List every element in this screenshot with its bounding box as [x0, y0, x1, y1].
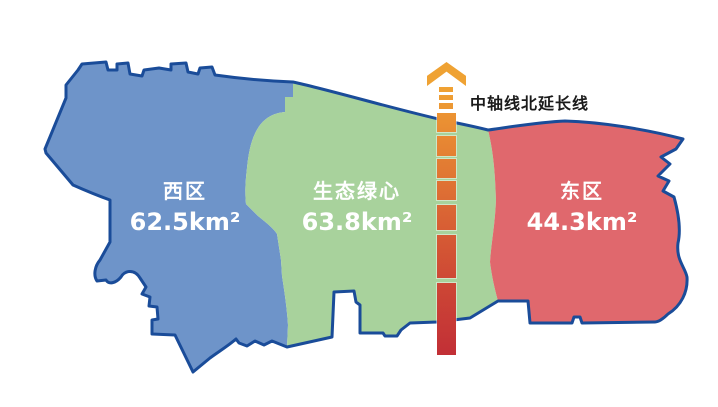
axis-dash	[439, 103, 453, 109]
planning-map: 西区 62.5km² 生态绿心 63.8km² 东区 44.3km² 中轴线北延…	[0, 0, 718, 407]
axis-dash	[437, 159, 456, 178]
axis-dash	[437, 235, 456, 278]
axis-line: 中轴线北延长线	[0, 0, 718, 407]
north-arrow-icon	[427, 62, 466, 86]
axis-dash	[437, 181, 456, 200]
axis-label: 中轴线北延长线	[470, 90, 589, 114]
axis-dash	[439, 87, 453, 92]
axis-dash	[437, 136, 456, 156]
axis-dash	[437, 113, 456, 132]
axis-dash	[437, 205, 456, 230]
axis-dash	[437, 283, 456, 355]
axis-dash	[439, 95, 453, 100]
